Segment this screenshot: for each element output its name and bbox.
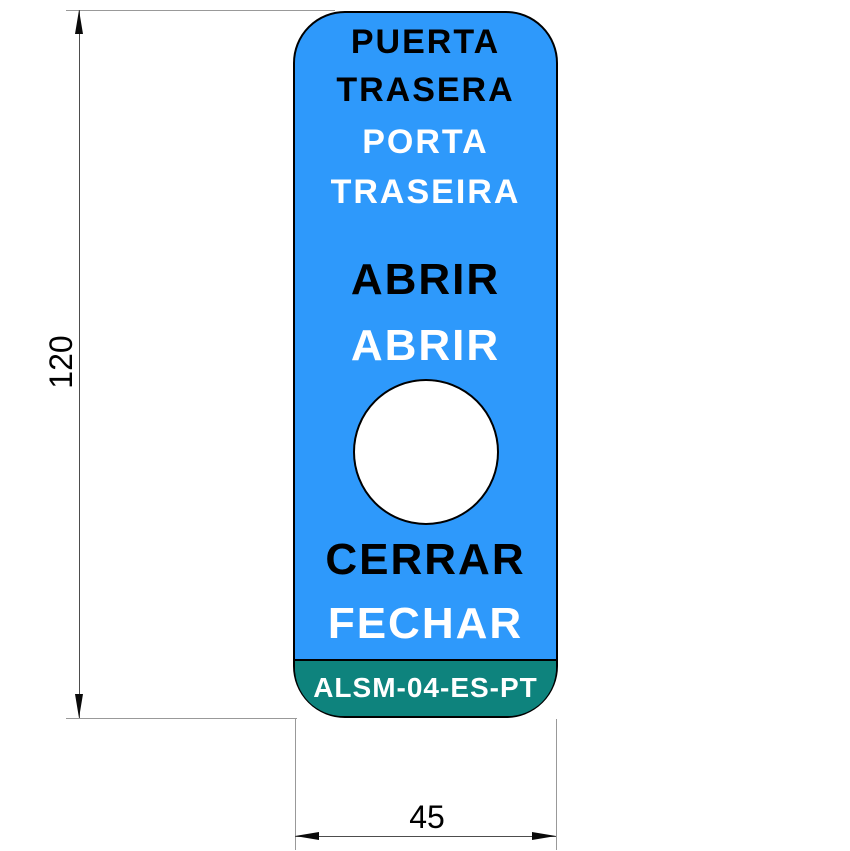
extension-line-left bbox=[295, 719, 296, 850]
plate-text-puerta: PUERTA bbox=[295, 22, 556, 62]
label-plate: PUERTA TRASERA PORTA TRASEIRA ABRIR ABRI… bbox=[293, 11, 558, 718]
extension-line-right bbox=[556, 719, 557, 850]
dimension-arrow-right-icon bbox=[532, 832, 556, 840]
plate-text-cerrar: CERRAR bbox=[295, 536, 556, 584]
vertical-dimension-line bbox=[79, 10, 80, 718]
dimension-height-value: 120 bbox=[45, 322, 77, 402]
dimension-arrow-down-icon bbox=[75, 694, 83, 718]
plate-text-abrir-es: ABRIR bbox=[295, 256, 556, 304]
horizontal-dimension-line bbox=[295, 836, 556, 837]
part-number-band: ALSM-04-ES-PT bbox=[295, 659, 556, 716]
plate-text-fechar: FECHAR bbox=[295, 600, 556, 648]
punch-hole bbox=[353, 379, 499, 525]
plate-text-abrir-pt: ABRIR bbox=[295, 322, 556, 370]
plate-text-traseira: TRASEIRA bbox=[295, 172, 556, 212]
dimension-width-value: 45 bbox=[387, 801, 467, 833]
extension-line-top bbox=[66, 10, 335, 11]
technical-drawing-canvas: 120 PUERTA TRASERA PORTA TRASEIRA ABRIR … bbox=[0, 0, 850, 851]
dimension-arrow-up-icon bbox=[75, 10, 83, 34]
part-number-text: ALSM-04-ES-PT bbox=[313, 672, 538, 703]
plate-text-trasera: TRASERA bbox=[295, 70, 556, 110]
plate-text-porta: PORTA bbox=[295, 122, 556, 162]
extension-line-bottom bbox=[66, 718, 297, 719]
dimension-arrow-left-icon bbox=[295, 832, 319, 840]
